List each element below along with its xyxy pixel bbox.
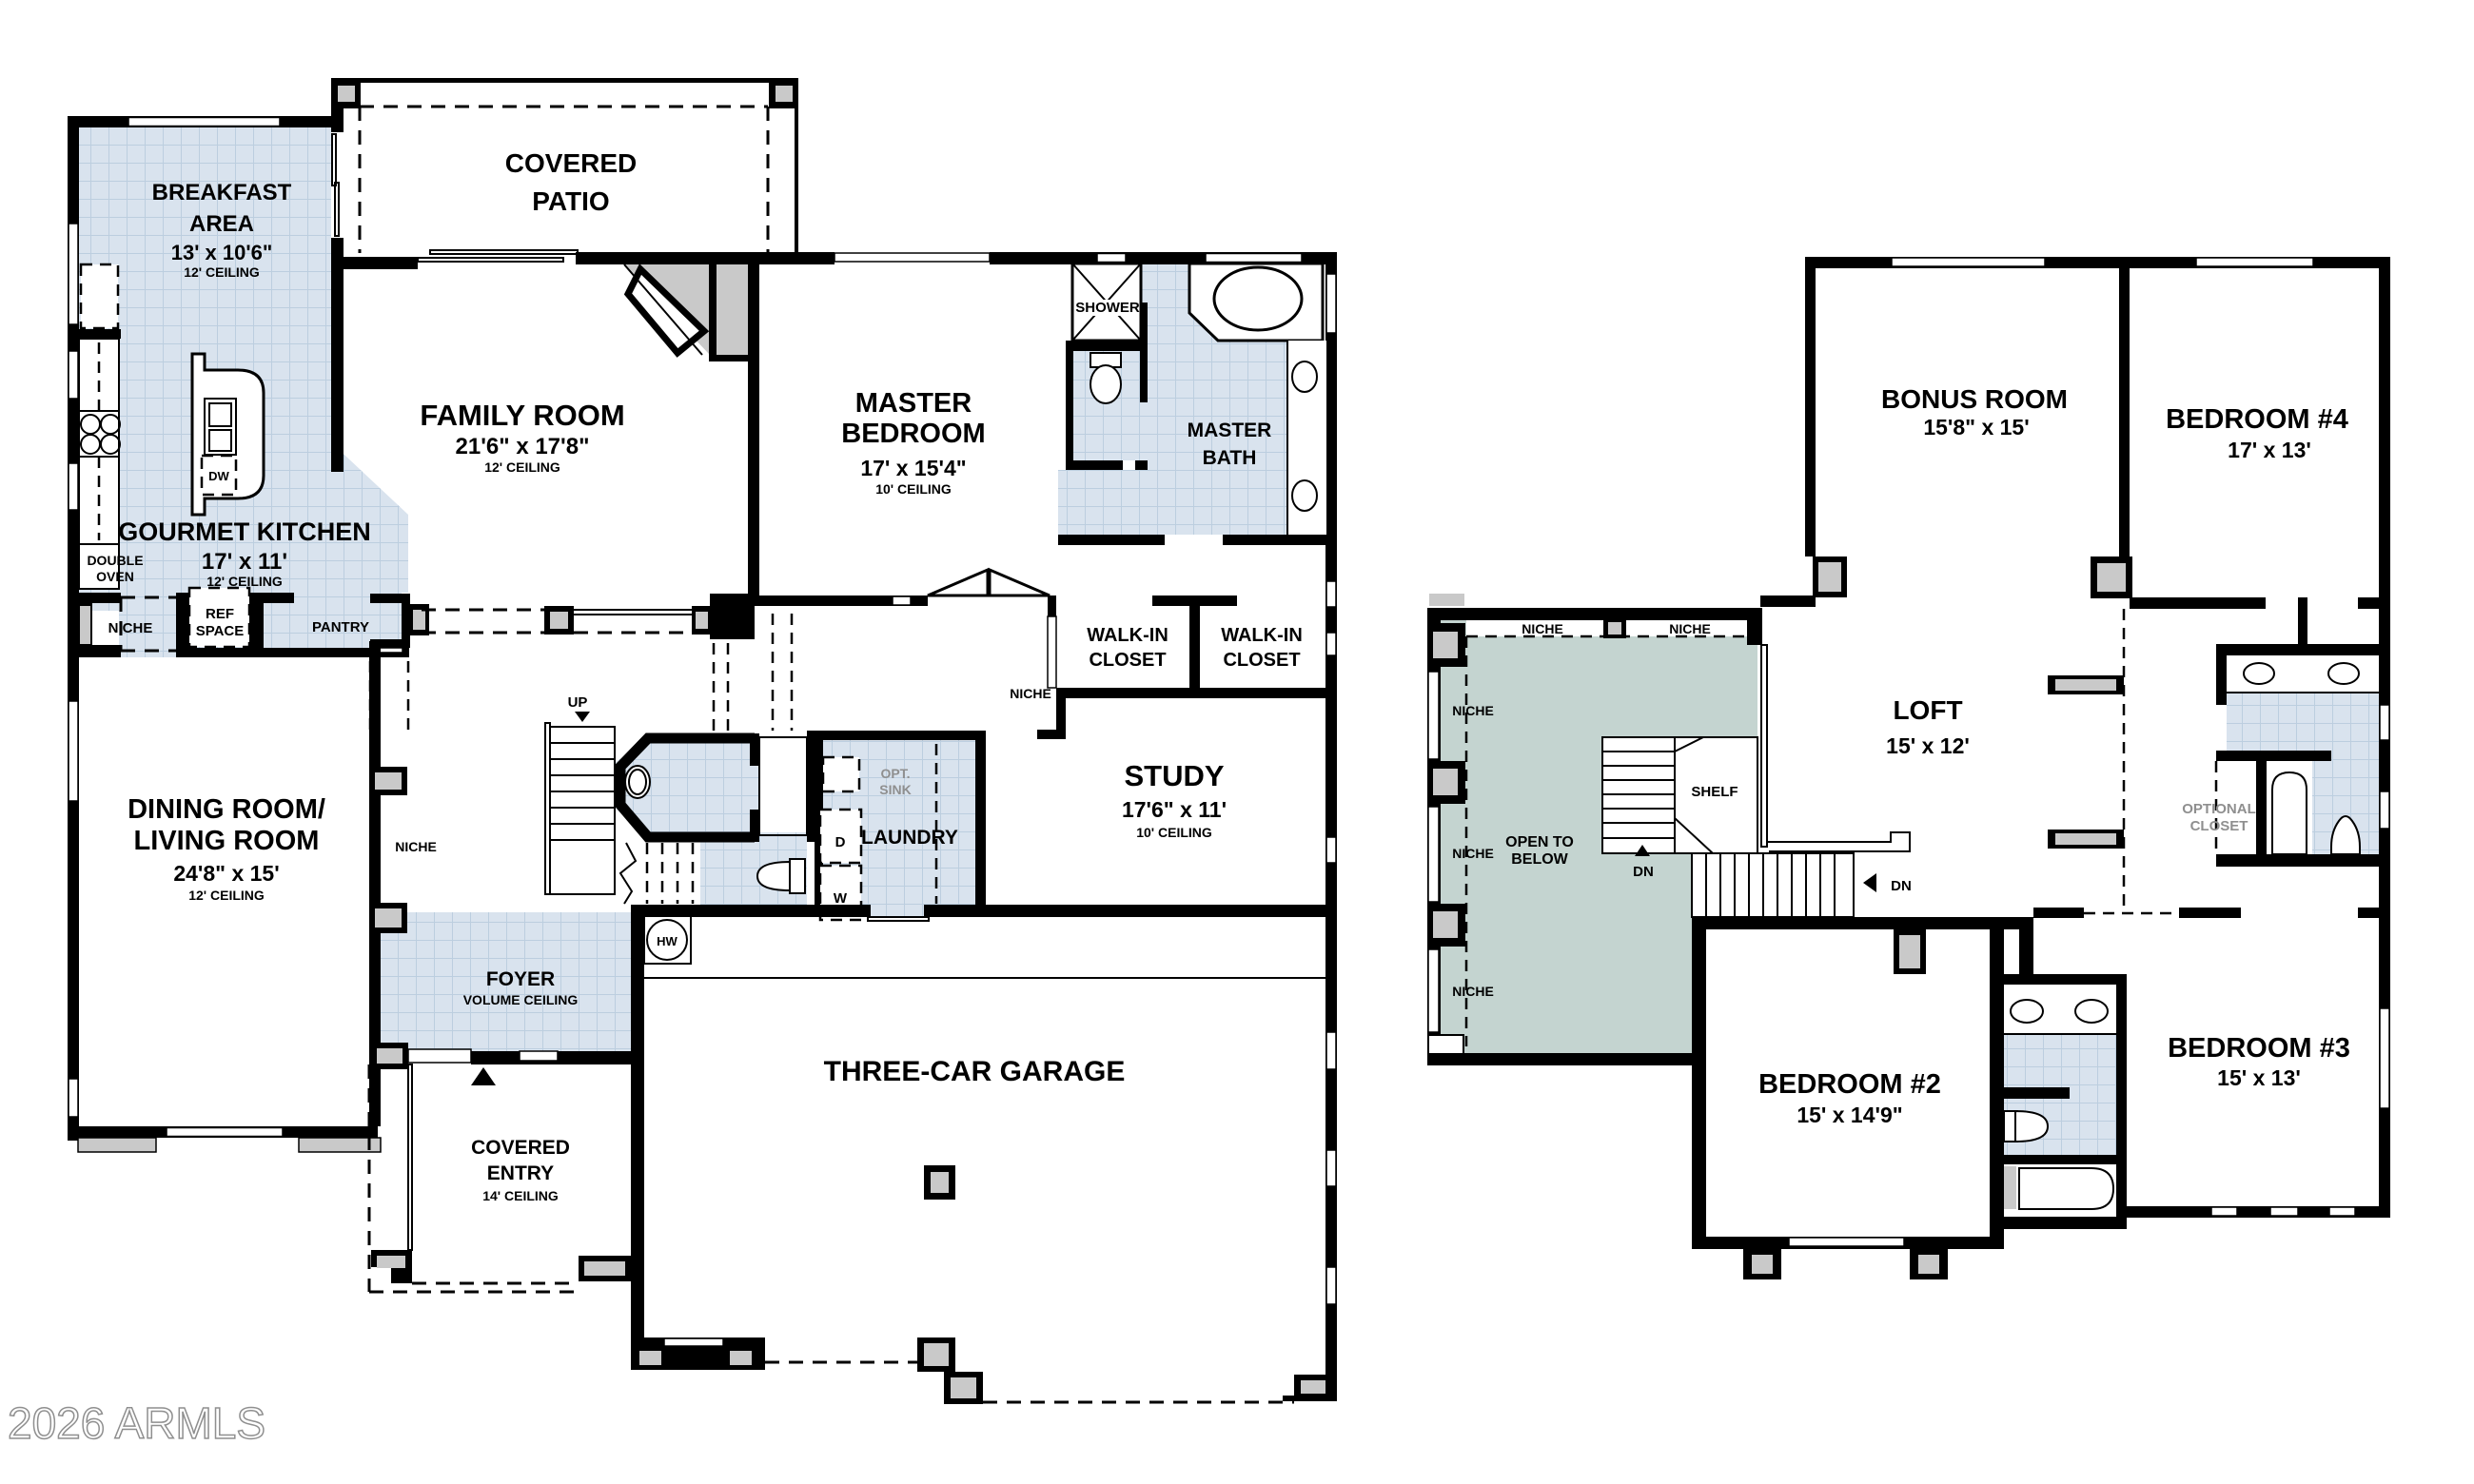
svg-text:21'6" x 17'8": 21'6" x 17'8" (456, 434, 590, 459)
svg-text:PATIO: PATIO (532, 186, 609, 216)
svg-text:CLOSET: CLOSET (1089, 650, 1166, 671)
svg-text:LOFT: LOFT (1893, 695, 1962, 725)
svg-text:15'8" x 15': 15'8" x 15' (1923, 415, 2029, 439)
svg-text:10' CEILING: 10' CEILING (1136, 825, 1212, 840)
svg-text:COVERED: COVERED (505, 148, 637, 178)
svg-text:NICHE: NICHE (1522, 621, 1563, 636)
svg-text:OPT.: OPT. (880, 766, 910, 781)
svg-text:WALK-IN: WALK-IN (1087, 625, 1168, 646)
svg-text:15' x 14'9": 15' x 14'9" (1797, 1103, 1902, 1127)
svg-text:12' CEILING: 12' CEILING (188, 888, 265, 903)
svg-text:NICHE: NICHE (1452, 703, 1494, 718)
svg-text:NICHE: NICHE (1452, 984, 1494, 999)
svg-text:DN: DN (1891, 878, 1912, 894)
svg-text:17' x 11': 17' x 11' (202, 549, 287, 575)
svg-text:DOUBLE: DOUBLE (87, 553, 143, 568)
svg-text:MASTER: MASTER (855, 388, 972, 419)
svg-text:12' CEILING: 12' CEILING (206, 574, 283, 589)
svg-text:12' CEILING: 12' CEILING (184, 264, 260, 280)
svg-text:15' x 13': 15' x 13' (2217, 1065, 2301, 1090)
svg-text:SHOWER: SHOWER (1075, 300, 1140, 316)
svg-text:BATH: BATH (1203, 447, 1257, 469)
svg-text:OVEN: OVEN (96, 569, 134, 584)
svg-text:GOURMET KITCHEN: GOURMET KITCHEN (118, 517, 371, 546)
svg-text:SINK: SINK (879, 782, 911, 797)
svg-text:24'8" x 15': 24'8" x 15' (173, 861, 279, 886)
svg-text:17'6" x 11': 17'6" x 11' (1122, 797, 1227, 822)
svg-text:D: D (835, 834, 846, 850)
svg-text:BEDROOM #4: BEDROOM #4 (2166, 404, 2348, 435)
svg-text:PANTRY: PANTRY (312, 619, 369, 635)
svg-text:WALK-IN: WALK-IN (1221, 625, 1303, 646)
svg-text:DINING ROOM/: DINING ROOM/ (128, 794, 325, 825)
svg-text:LIVING ROOM: LIVING ROOM (134, 826, 320, 856)
svg-text:FAMILY ROOM: FAMILY ROOM (420, 399, 624, 432)
svg-text:BEDROOM #2: BEDROOM #2 (1758, 1069, 1941, 1100)
svg-text:DN: DN (1633, 864, 1654, 880)
svg-text:REF: REF (206, 606, 234, 622)
svg-text:COVERED: COVERED (471, 1137, 570, 1159)
svg-text:LAUNDRY: LAUNDRY (861, 827, 958, 849)
svg-text:VOLUME CEILING: VOLUME CEILING (463, 992, 579, 1007)
svg-text:NICHE: NICHE (1452, 846, 1494, 861)
svg-text:BEDROOM: BEDROOM (841, 419, 985, 449)
svg-text:BONUS ROOM: BONUS ROOM (1881, 384, 2068, 414)
svg-text:THREE-CAR GARAGE: THREE-CAR GARAGE (824, 1056, 1126, 1087)
svg-text:OPEN TO: OPEN TO (1505, 834, 1574, 850)
svg-text:17' x 15'4": 17' x 15'4" (860, 456, 966, 480)
svg-text:STUDY: STUDY (1124, 759, 1224, 792)
svg-text:BELOW: BELOW (1511, 851, 1568, 868)
svg-text:DW: DW (208, 469, 229, 483)
svg-text:BEDROOM #3: BEDROOM #3 (2168, 1033, 2350, 1064)
svg-text:HW: HW (657, 934, 677, 948)
svg-text:NICHE: NICHE (108, 620, 153, 636)
svg-text:SHELF: SHELF (1691, 784, 1738, 800)
svg-text:AREA: AREA (189, 211, 254, 237)
svg-text:12' CEILING: 12' CEILING (484, 459, 560, 475)
svg-text:W: W (834, 890, 848, 907)
svg-text:ENTRY: ENTRY (487, 1162, 554, 1184)
svg-text:UP: UP (568, 694, 588, 711)
svg-text:BREAKFAST: BREAKFAST (152, 180, 292, 205)
svg-text:13' x 10'6": 13' x 10'6" (171, 241, 273, 264)
svg-text:2026 ARMLS: 2026 ARMLS (8, 1398, 265, 1448)
svg-text:10' CEILING: 10' CEILING (875, 481, 952, 497)
svg-text:14' CEILING: 14' CEILING (482, 1188, 559, 1203)
svg-text:CLOSET: CLOSET (2190, 818, 2248, 834)
svg-text:NICHE: NICHE (1669, 621, 1711, 636)
svg-text:15' x 12': 15' x 12' (1886, 733, 1970, 758)
svg-text:17' x 13': 17' x 13' (2228, 438, 2311, 462)
svg-text:OPTIONAL: OPTIONAL (2182, 801, 2256, 817)
svg-text:NICHE: NICHE (395, 839, 437, 854)
svg-text:NICHE: NICHE (1010, 686, 1051, 701)
svg-text:FOYER: FOYER (486, 968, 555, 990)
svg-text:SPACE: SPACE (196, 623, 245, 639)
svg-text:MASTER: MASTER (1188, 420, 1272, 441)
svg-text:CLOSET: CLOSET (1223, 650, 1300, 671)
